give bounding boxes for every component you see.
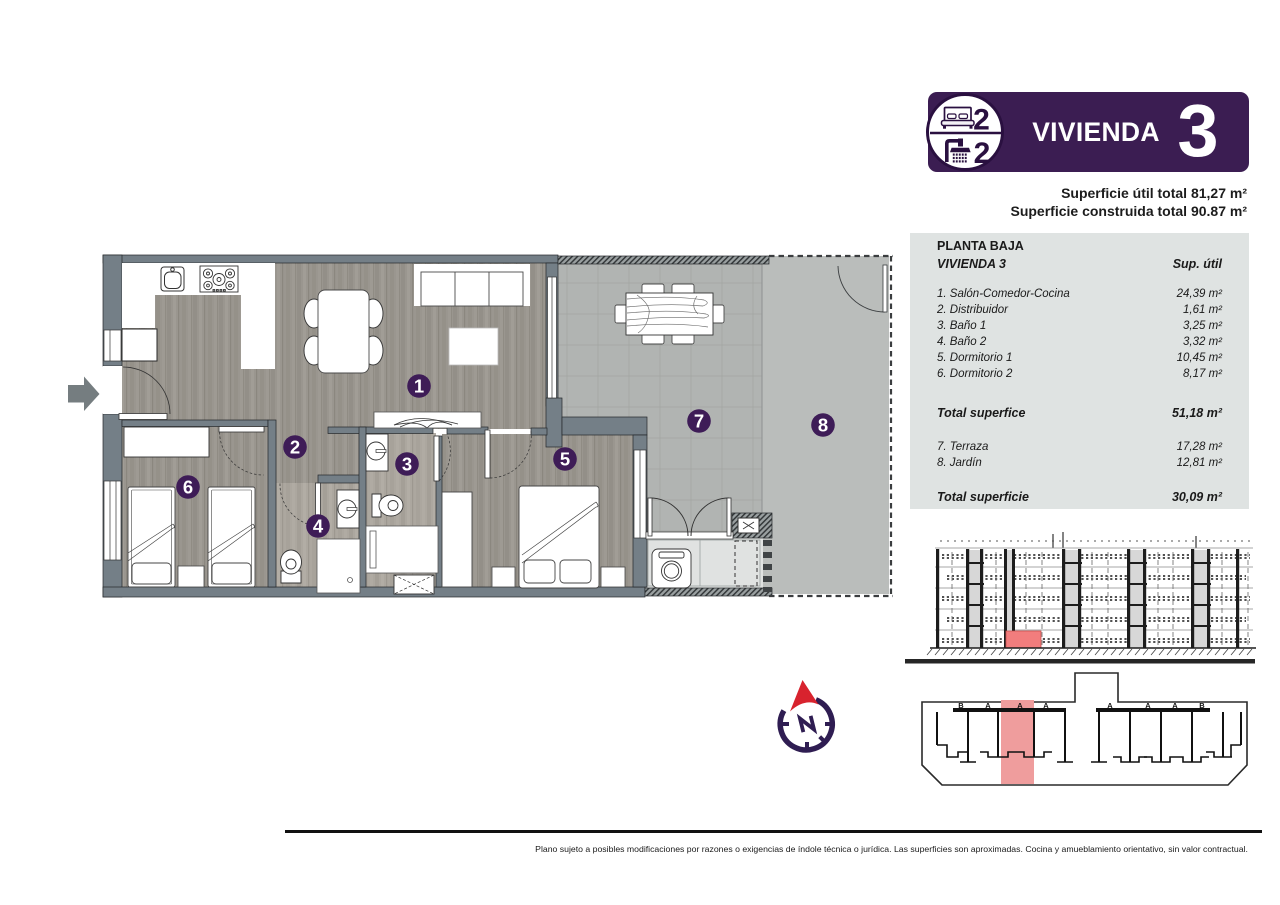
- svg-text:4: 4: [313, 516, 324, 537]
- svg-text:3: 3: [402, 454, 412, 475]
- svg-text:6: 6: [183, 477, 193, 498]
- svg-text:A: A: [1043, 701, 1049, 710]
- svg-text:1: 1: [414, 376, 424, 397]
- svg-text:A: A: [1017, 701, 1023, 710]
- svg-text:B: B: [958, 701, 964, 710]
- svg-text:B: B: [1199, 701, 1205, 710]
- svg-text:8: 8: [818, 415, 828, 436]
- svg-text:A: A: [1172, 701, 1178, 710]
- svg-text:2: 2: [290, 437, 300, 458]
- svg-text:A: A: [1107, 701, 1113, 710]
- svg-text:A: A: [1145, 701, 1151, 710]
- svg-text:7: 7: [694, 411, 704, 432]
- svg-text:5: 5: [560, 449, 570, 470]
- svg-text:A: A: [985, 701, 991, 710]
